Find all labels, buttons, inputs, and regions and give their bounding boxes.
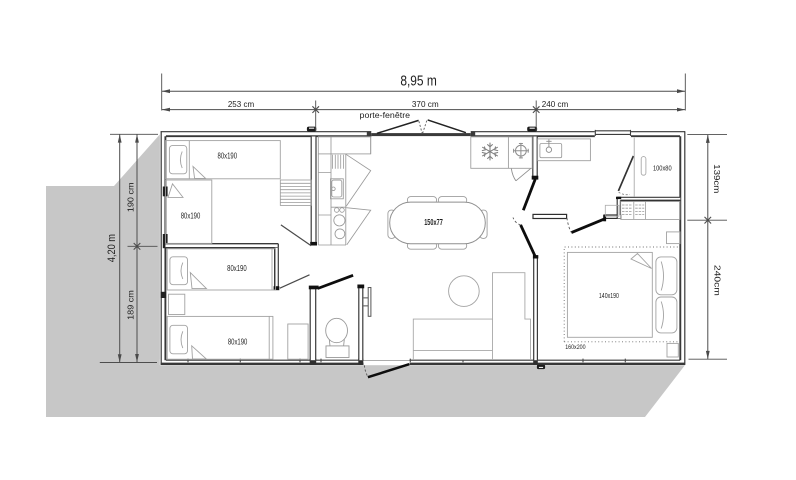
svg-text:253 cm: 253 cm: [228, 100, 254, 109]
svg-text:porte-fenêtre: porte-fenêtre: [360, 110, 411, 120]
svg-text:80x190: 80x190: [227, 264, 247, 273]
svg-text:160x200: 160x200: [565, 344, 586, 351]
svg-text:189 cm: 189 cm: [125, 290, 135, 320]
svg-text:140x190: 140x190: [599, 291, 619, 300]
svg-text:4,20 m: 4,20 m: [106, 234, 118, 262]
svg-text:150x77: 150x77: [424, 217, 443, 227]
svg-text:8,95 m: 8,95 m: [400, 74, 437, 90]
svg-text:240cm: 240cm: [712, 265, 722, 296]
svg-text:139cm: 139cm: [712, 164, 722, 193]
svg-text:370 cm: 370 cm: [412, 100, 439, 109]
svg-text:190 cm: 190 cm: [125, 182, 135, 212]
svg-text:240 cm: 240 cm: [542, 100, 569, 109]
svg-text:80x190: 80x190: [228, 337, 248, 346]
svg-text:80x190: 80x190: [181, 211, 201, 220]
svg-text:80x190: 80x190: [218, 152, 238, 161]
svg-text:100x80: 100x80: [653, 166, 672, 173]
